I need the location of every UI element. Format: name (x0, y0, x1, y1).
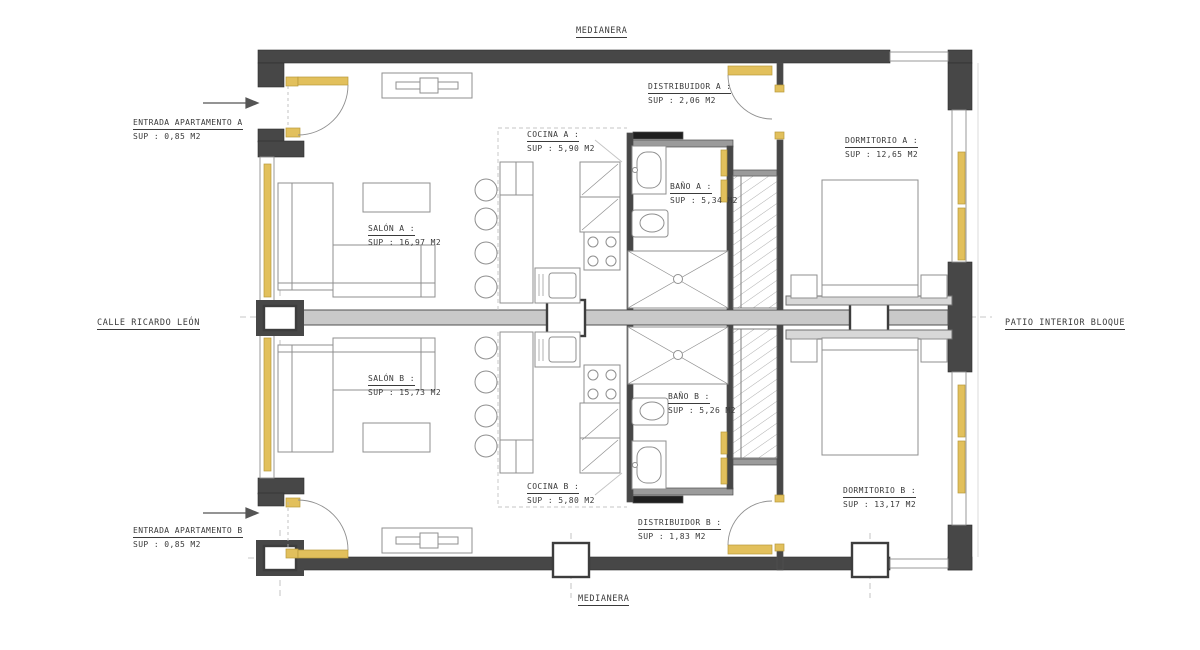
entrance-b-arrow (203, 508, 258, 518)
label-medianera-bottom: MEDIANERA (578, 594, 629, 604)
hall-door-b (728, 501, 772, 554)
coffee-table-a (363, 183, 430, 212)
room-label-cocina-a: COCINA A : SUP : 5,90 M2 (527, 130, 595, 154)
sink-b (535, 332, 580, 367)
room-label-salon-b: SALÓN B : SUP : 15,73 M2 (368, 374, 441, 398)
window-left-a (264, 164, 271, 297)
stove-a (584, 232, 620, 270)
washbasin-a (632, 146, 666, 194)
coffee-table-b (363, 423, 430, 452)
entrance-door-b (286, 498, 348, 558)
nightstand-a-left (791, 275, 817, 298)
dining-chairs-b (475, 337, 497, 457)
label-calle-ricardo-leon: CALLE RICARDO LEÓN (97, 318, 200, 328)
room-label-bano-b: BAÑO B : SUP : 5,26 M2 (668, 392, 736, 416)
nightstand-a-right (921, 275, 947, 298)
room-label-bano-a: BAÑO A : SUP : 5,34 M2 (670, 182, 738, 206)
room-label-dormitorio-a: DORMITORIO A : SUP : 12,65 M2 (845, 136, 918, 160)
window-bottom (890, 559, 948, 568)
shower-a (628, 251, 728, 308)
nightstand-b-left (791, 339, 817, 362)
room-label-cocina-b: COCINA B : SUP : 5,80 M2 (527, 482, 595, 506)
room-label-dormitorio-b: DORMITORIO B : SUP : 13,17 M2 (843, 486, 916, 510)
kitchen-b (500, 332, 620, 473)
toilet-b (632, 398, 668, 425)
entrance-a-arrow (203, 98, 258, 108)
nightstand-b-right (921, 339, 947, 362)
bedroom-a (786, 180, 952, 305)
bathroom-a (628, 146, 728, 308)
wardrobe-a (733, 176, 777, 308)
bed-a (822, 180, 918, 297)
room-label-distribuidor-b: DISTRIBUIDOR B : SUP : 1,83 M2 (638, 518, 721, 542)
label-patio-interior: PATIO INTERIOR BLOQUE (1005, 318, 1125, 328)
bed-b (822, 338, 918, 455)
toilet-a (632, 210, 668, 237)
window-right-a1 (958, 152, 965, 204)
sideboard-tv-a (382, 73, 472, 98)
washbasin-b (632, 441, 666, 489)
shower-b (628, 327, 728, 384)
window-top (890, 52, 948, 61)
floor-plan-canvas: MEDIANERA MEDIANERA CALLE RICARDO LEÓN P… (0, 0, 1200, 650)
stove-b (584, 365, 620, 403)
living-room-b (278, 337, 497, 553)
kitchen-a (500, 162, 620, 303)
window-right-a2 (958, 208, 965, 260)
sink-a (535, 268, 580, 303)
room-label-entrada-b: ENTRADA APARTAMENTO B SUP : 0,85 M2 (133, 526, 243, 550)
bedroom-b (786, 330, 952, 455)
hall-door-a (728, 66, 772, 119)
label-medianera-top: MEDIANERA (576, 26, 627, 36)
dining-chairs-a (475, 179, 497, 298)
room-label-entrada-a: ENTRADA APARTAMENTO A SUP : 0,85 M2 (133, 118, 243, 142)
window-left-b (264, 338, 271, 471)
room-label-distribuidor-a: DISTRIBUIDOR A : SUP : 2,06 M2 (648, 82, 731, 106)
living-room-a (278, 73, 497, 298)
room-label-salon-a: SALÓN A : SUP : 16,97 M2 (368, 224, 441, 248)
window-right-b1 (958, 385, 965, 437)
entrance-door-a (286, 77, 348, 137)
sideboard-tv-b (382, 528, 472, 553)
wardrobe-b (733, 329, 777, 458)
window-right-b2 (958, 441, 965, 493)
